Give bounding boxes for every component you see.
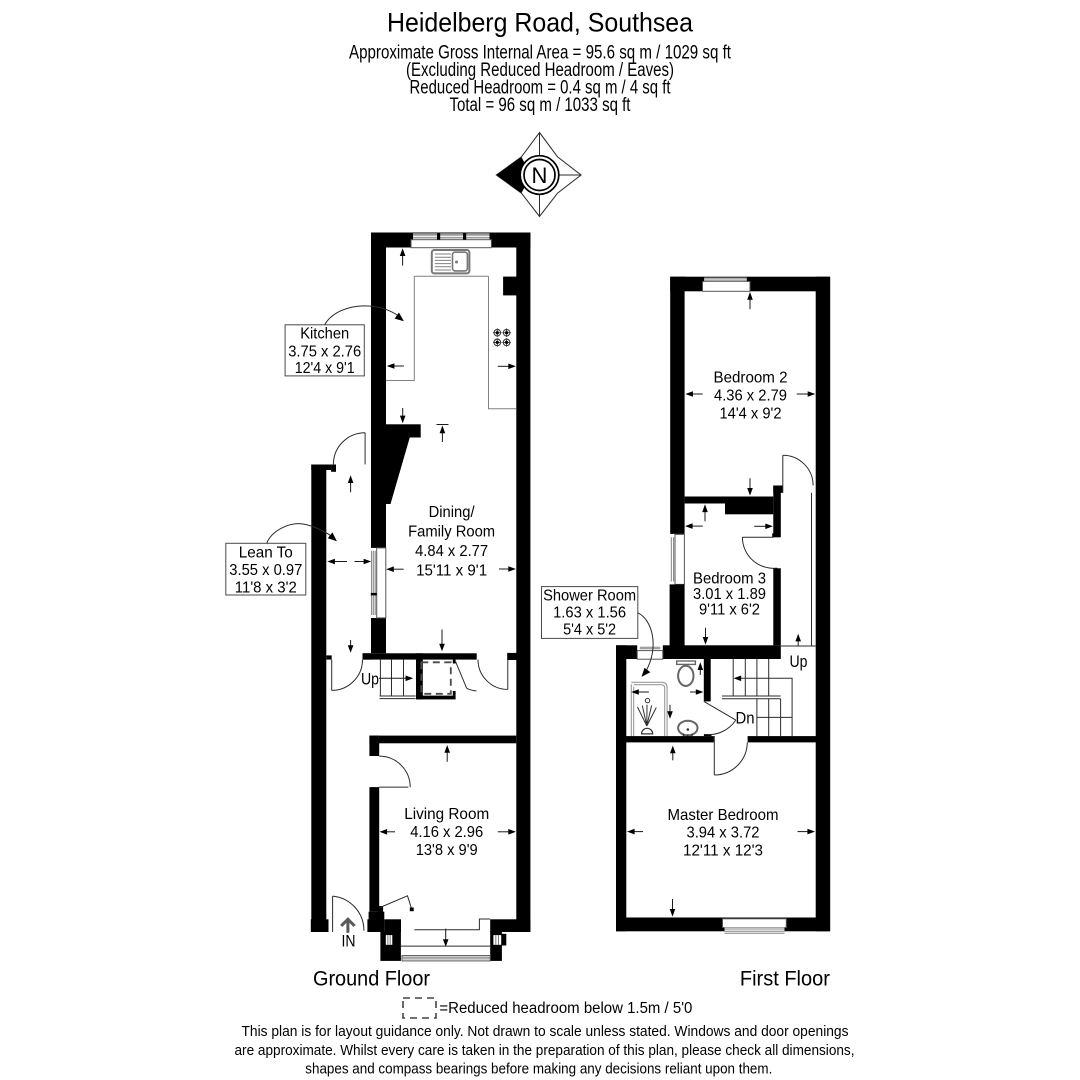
svg-text:IN: IN (342, 932, 356, 951)
svg-text:Total = 96 sq m / 1033 sq ft: Total = 96 sq m / 1033 sq ft (450, 95, 632, 116)
svg-text:Shower Room: Shower Room (543, 588, 636, 605)
svg-text:12'4 x 9'1: 12'4 x 9'1 (295, 360, 355, 377)
svg-text:13'8 x 9'9: 13'8 x 9'9 (416, 842, 478, 859)
svg-text:9'11 x 6'2: 9'11 x 6'2 (699, 601, 760, 618)
svg-text:Living Room: Living Room (404, 806, 489, 823)
svg-text:4.36 x 2.79: 4.36 x 2.79 (714, 388, 787, 405)
svg-text:are approximate. Whilst every: are approximate. Whilst every care is ta… (235, 1043, 855, 1059)
svg-text:This plan is for layout guidan: This plan is for layout guidance only. N… (242, 1024, 849, 1040)
svg-text:3.55 x 0.97: 3.55 x 0.97 (229, 562, 302, 579)
svg-text:5'4 x 5'2: 5'4 x 5'2 (563, 621, 616, 638)
svg-text:Dining/: Dining/ (429, 504, 476, 521)
svg-text:Bedroom 3: Bedroom 3 (693, 570, 766, 587)
svg-text:4.16 x 2.96: 4.16 x 2.96 (410, 824, 483, 841)
svg-text:=Reduced headroom below 1.5m /: =Reduced headroom below 1.5m / 5'0 (439, 1000, 692, 1017)
svg-text:Up: Up (361, 670, 379, 689)
svg-text:N: N (532, 163, 548, 188)
svg-text:3.01 x 1.89: 3.01 x 1.89 (693, 586, 766, 603)
svg-text:Family Room: Family Room (408, 524, 495, 541)
svg-text:First Floor: First Floor (740, 968, 830, 991)
svg-text:Bedroom 2: Bedroom 2 (714, 370, 788, 387)
svg-text:Ground Floor: Ground Floor (313, 967, 430, 990)
svg-text:3.94 x 3.72: 3.94 x 3.72 (687, 825, 760, 842)
svg-text:1.63 x 1.56: 1.63 x 1.56 (553, 605, 626, 622)
svg-text:Dn: Dn (736, 709, 755, 728)
svg-text:Up: Up (790, 652, 808, 671)
svg-text:Lean To: Lean To (239, 545, 293, 562)
svg-text:Master Bedroom: Master Bedroom (668, 807, 779, 824)
svg-text:11'8 x 3'2: 11'8 x 3'2 (235, 580, 297, 597)
svg-text:12'11 x 12'3: 12'11 x 12'3 (683, 843, 763, 860)
svg-text:3.75 x 2.76: 3.75 x 2.76 (288, 343, 361, 360)
svg-text:Heidelberg Road, Southsea: Heidelberg Road, Southsea (387, 8, 693, 38)
svg-text:15'11 x 9'1: 15'11 x 9'1 (416, 563, 487, 580)
svg-text:Kitchen: Kitchen (300, 325, 349, 342)
svg-text:4.84 x 2.77: 4.84 x 2.77 (415, 543, 488, 560)
svg-text:shapes and compass bearings be: shapes and compass bearings before makin… (305, 1062, 772, 1078)
svg-text:14'4 x 9'2: 14'4 x 9'2 (720, 405, 782, 422)
